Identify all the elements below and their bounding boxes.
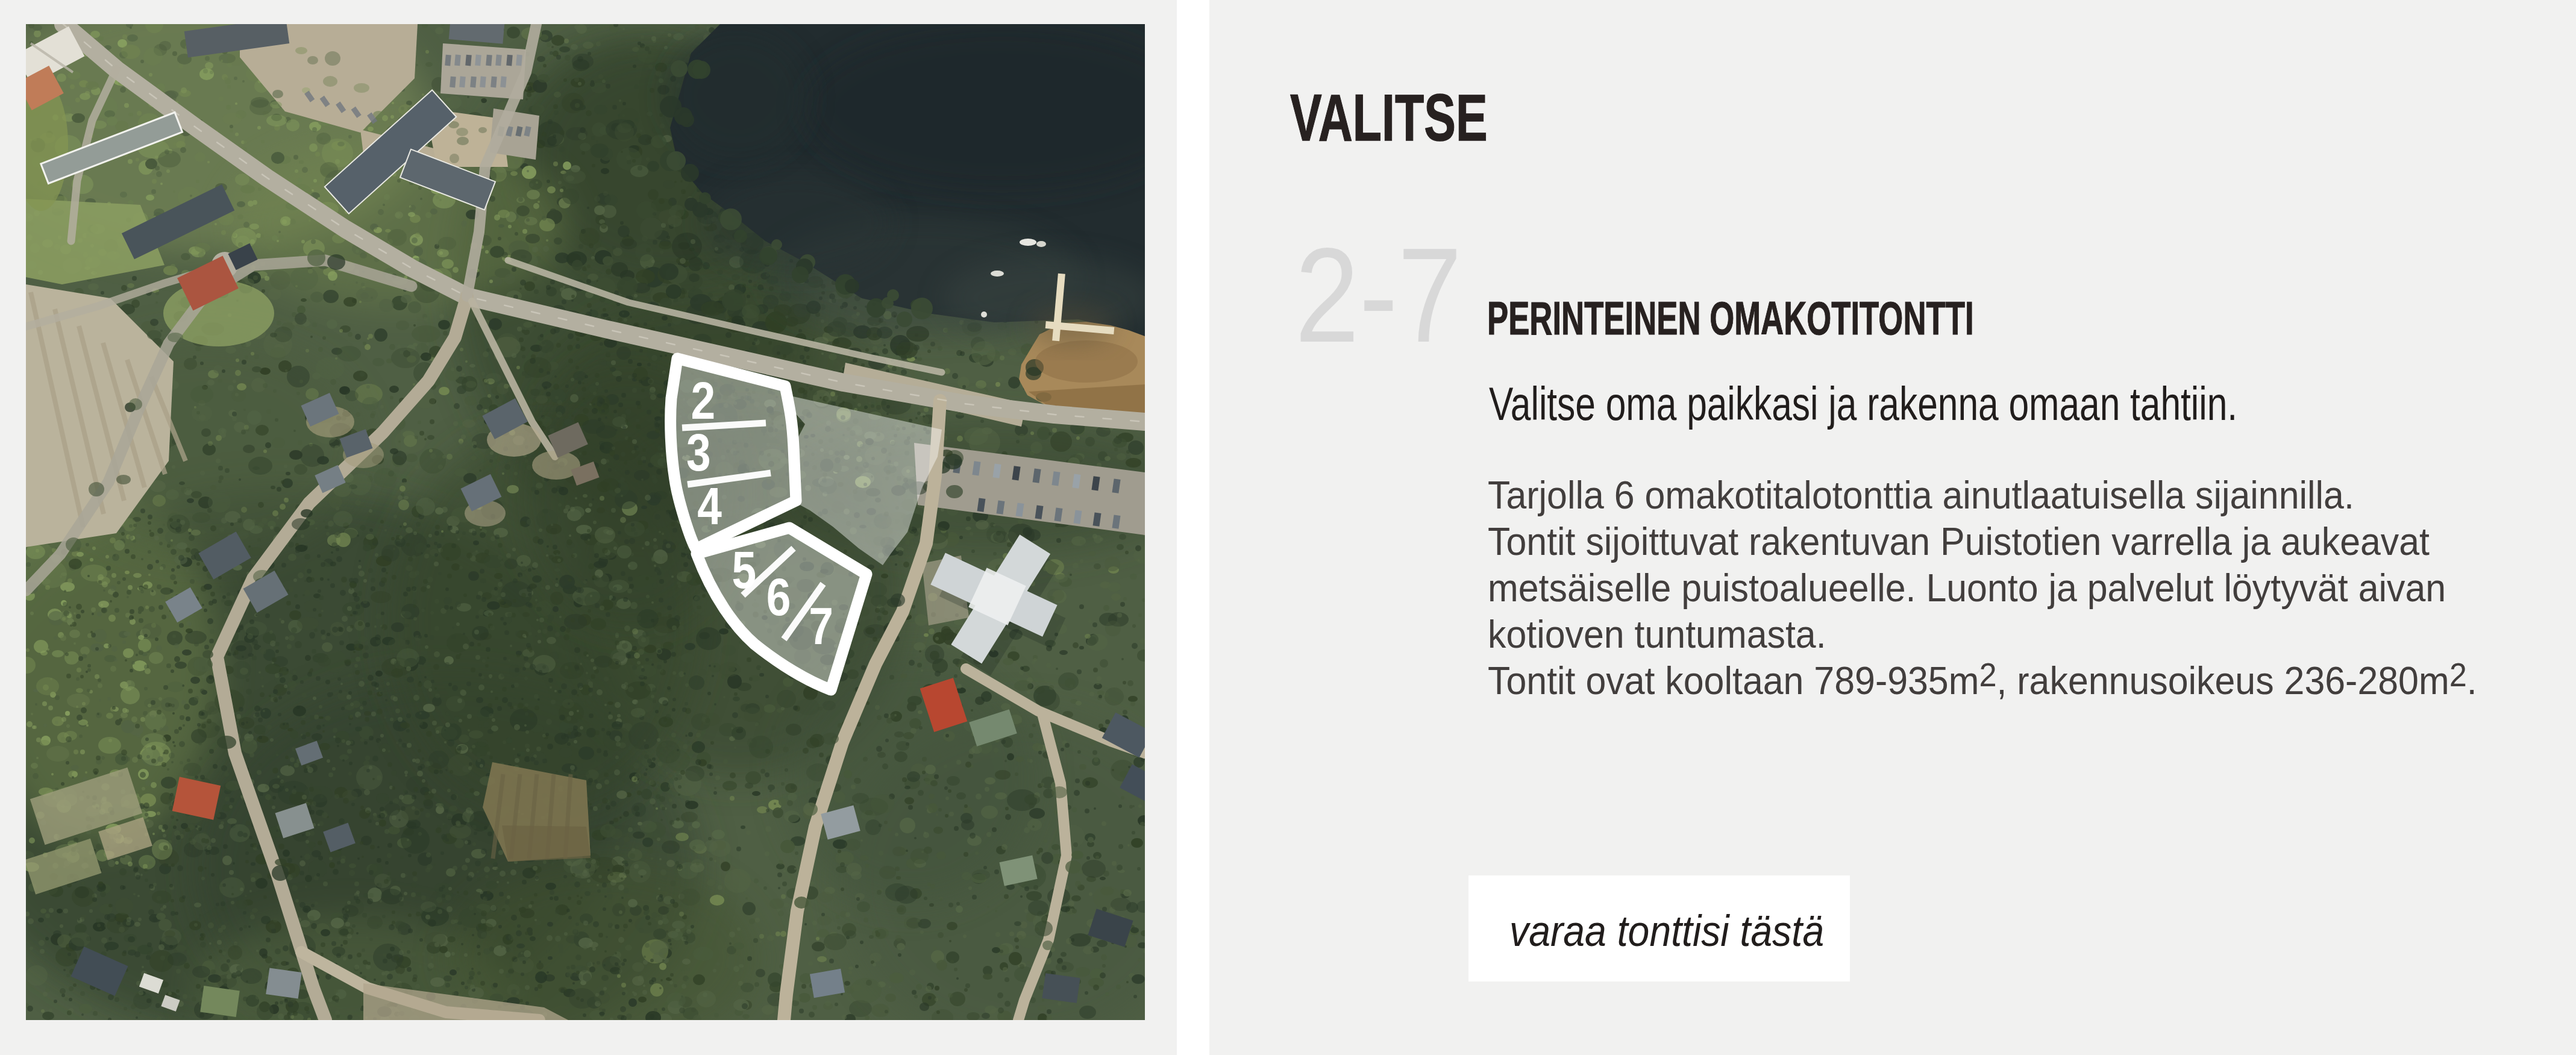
svg-text:5: 5 (732, 540, 757, 600)
svg-text:2: 2 (691, 371, 716, 430)
svg-text:3: 3 (686, 423, 711, 482)
svg-text:6: 6 (766, 568, 791, 627)
svg-text:7: 7 (809, 596, 833, 656)
svg-text:4: 4 (697, 477, 722, 536)
